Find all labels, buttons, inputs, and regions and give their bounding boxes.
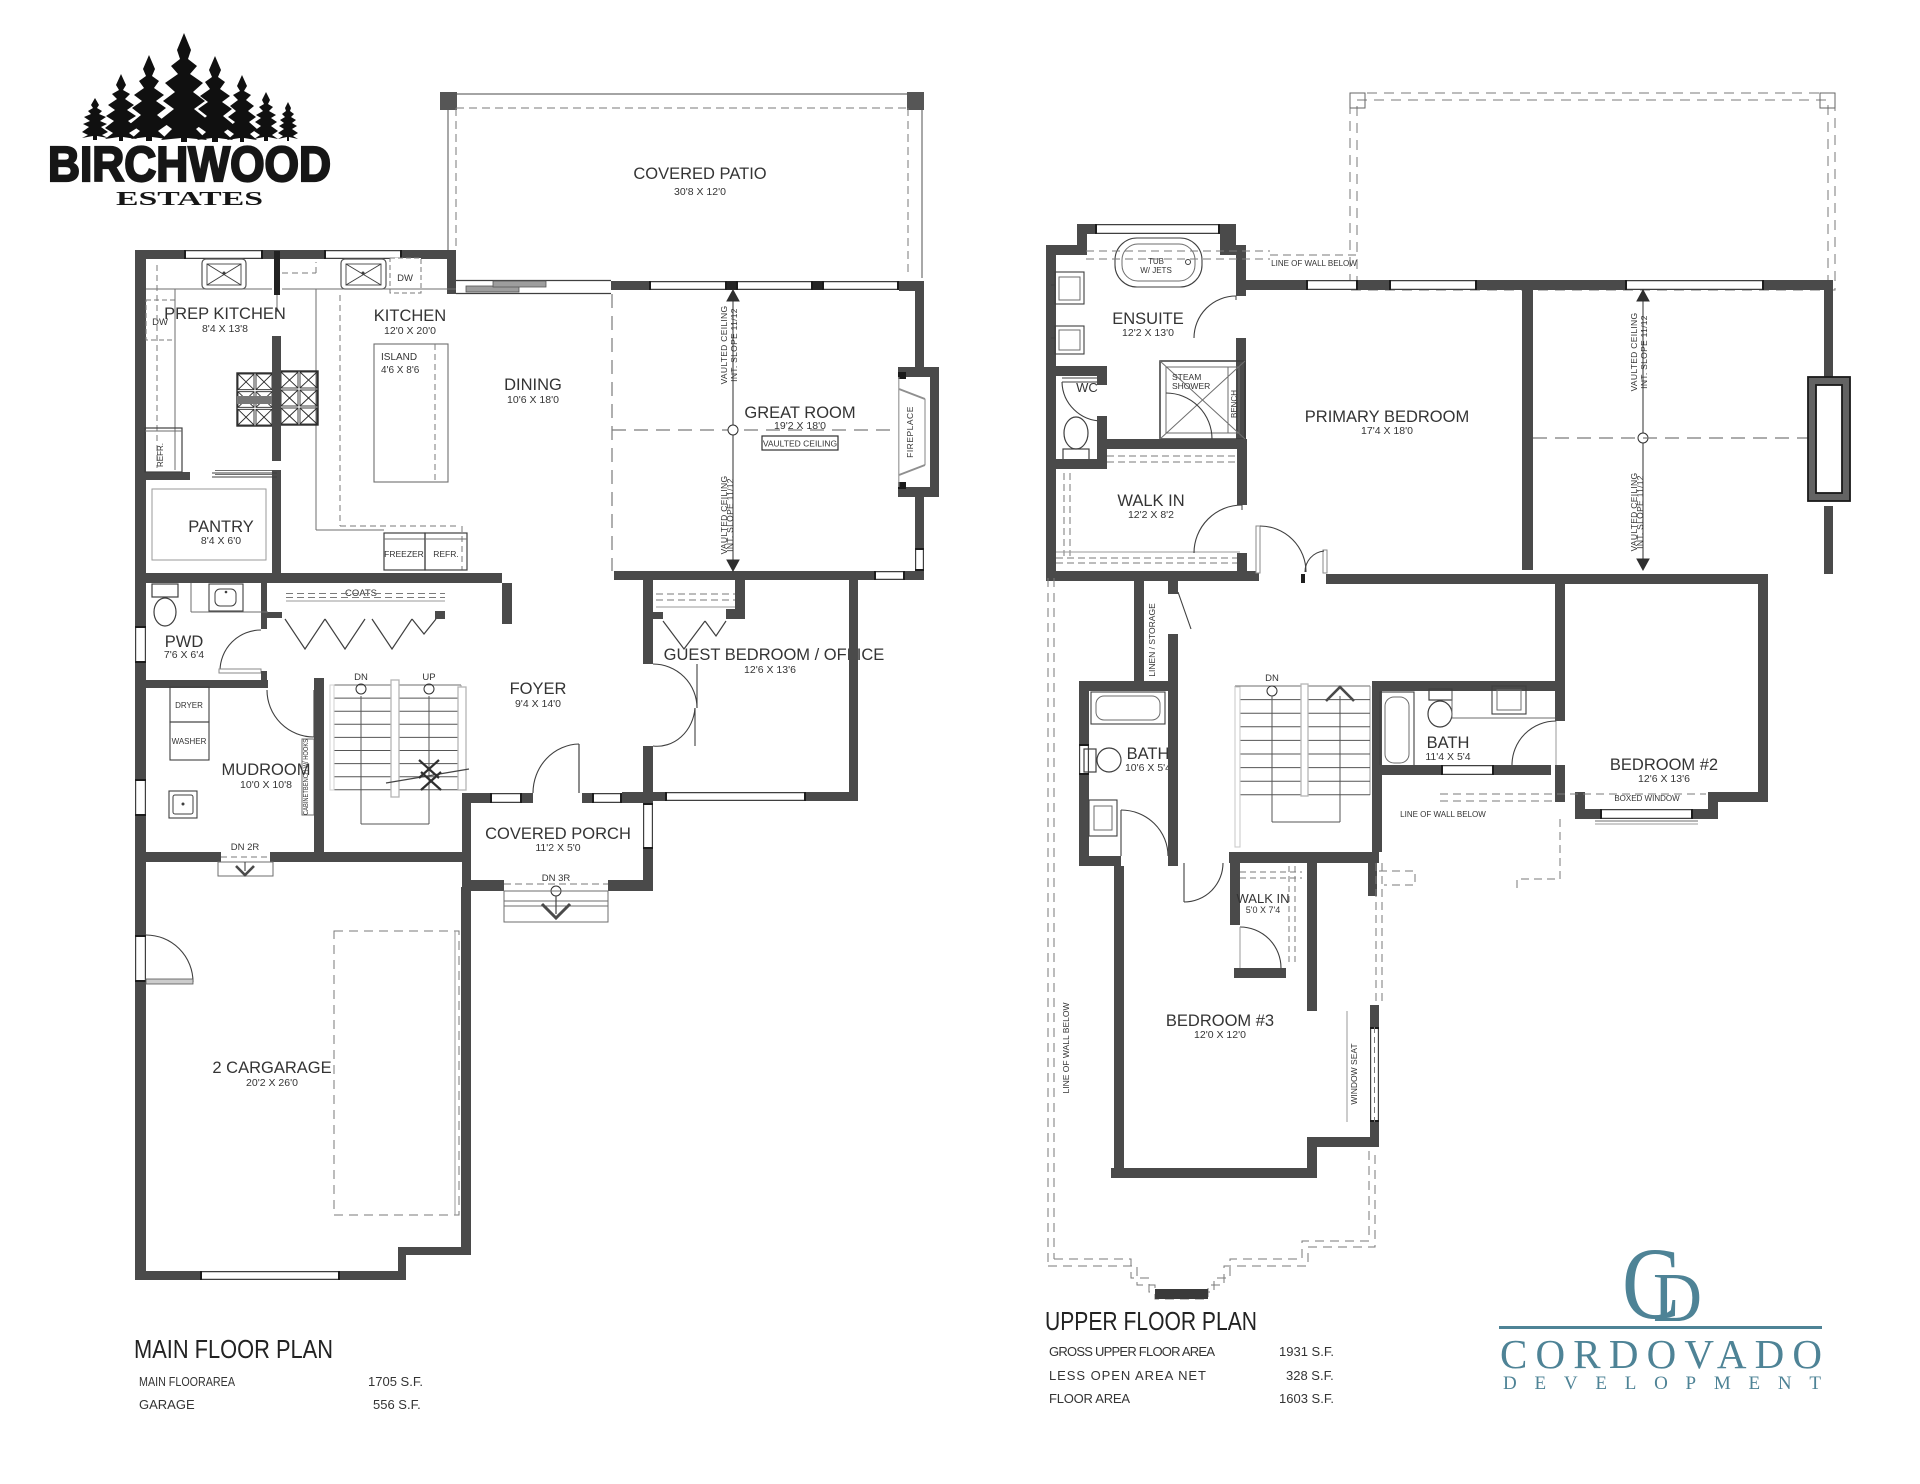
svg-text:REFR.: REFR.: [433, 549, 459, 559]
svg-text:12'6 X 13'6: 12'6 X 13'6: [1638, 773, 1690, 785]
svg-text:WINDOW SEAT: WINDOW SEAT: [1349, 1043, 1359, 1104]
svg-text:BOXED WINDOW: BOXED WINDOW: [1614, 794, 1680, 803]
svg-text:556 S.F.: 556 S.F.: [373, 1397, 421, 1412]
svg-text:UPPER FLOOR PLAN: UPPER FLOOR PLAN: [1045, 1308, 1257, 1336]
svg-text:D: D: [1653, 1260, 1702, 1337]
svg-text:KITCHEN: KITCHEN: [374, 307, 446, 325]
svg-text:2 CARGARAGE: 2 CARGARAGE: [212, 1059, 331, 1077]
svg-text:MUDROOM: MUDROOM: [222, 761, 311, 779]
svg-text:W/ JETS: W/ JETS: [1140, 266, 1172, 275]
svg-text:WALK IN: WALK IN: [1117, 492, 1184, 510]
svg-text:LINE OF WALL BELOW: LINE OF WALL BELOW: [1400, 810, 1486, 819]
svg-text:COATS: COATS: [345, 588, 377, 599]
svg-text:FLOOR AREA: FLOOR AREA: [1049, 1391, 1130, 1406]
svg-text:12'2 X 13'0: 12'2 X 13'0: [1122, 327, 1174, 339]
svg-text:VAULTED CEILING: VAULTED CEILING: [1629, 313, 1639, 392]
svg-text:UP: UP: [422, 672, 435, 683]
svg-text:8'4 X 6'0: 8'4 X 6'0: [201, 535, 241, 547]
svg-text:BIRCHWOOD: BIRCHWOOD: [48, 138, 331, 192]
svg-text:GROSS UPPER FLOOR AREA: GROSS UPPER FLOOR AREA: [1049, 1344, 1215, 1359]
svg-text:7'6 X 6'4: 7'6 X 6'4: [164, 649, 204, 661]
svg-text:BATH: BATH: [1127, 745, 1170, 763]
svg-text:VAULTED CEILING: VAULTED CEILING: [719, 306, 729, 385]
svg-text:LINE OF WALL BELOW: LINE OF WALL BELOW: [1271, 259, 1357, 268]
svg-text:11'4 X 5'4: 11'4 X 5'4: [1425, 751, 1470, 763]
svg-text:COVERED PATIO: COVERED PATIO: [633, 165, 766, 183]
svg-text:20'2 X 26'0: 20'2 X 26'0: [246, 1077, 298, 1089]
svg-text:DN: DN: [1265, 673, 1279, 684]
svg-text:WASHER: WASHER: [172, 737, 207, 746]
svg-text:TUB: TUB: [1148, 257, 1164, 266]
svg-text:MAIN FLOORAREA: MAIN FLOORAREA: [139, 1374, 235, 1389]
svg-text:1931 S.F.: 1931 S.F.: [1279, 1344, 1334, 1359]
svg-text:328 S.F.: 328 S.F.: [1286, 1368, 1334, 1383]
svg-text:DRYER: DRYER: [175, 701, 203, 710]
svg-text:BEDROOM #3: BEDROOM #3: [1166, 1012, 1274, 1030]
svg-text:LINEN / STORAGE: LINEN / STORAGE: [1147, 603, 1157, 677]
svg-text:5'0 X 7'4: 5'0 X 7'4: [1246, 905, 1280, 915]
svg-text:PANTRY: PANTRY: [188, 518, 253, 536]
svg-text:COVERED PORCH: COVERED PORCH: [485, 825, 631, 843]
svg-text:12'0 X 12'0: 12'0 X 12'0: [1194, 1029, 1246, 1041]
svg-text:BENCH: BENCH: [1230, 390, 1239, 418]
svg-text:SHOWER: SHOWER: [1172, 381, 1210, 391]
svg-text:17'4 X 18'0: 17'4 X 18'0: [1361, 425, 1413, 437]
svg-text:PRIMARY BEDROOM: PRIMARY BEDROOM: [1305, 408, 1469, 426]
svg-text:FREEZER: FREEZER: [384, 549, 424, 559]
svg-text:VAULTED CEILING: VAULTED CEILING: [763, 439, 837, 449]
svg-text:BEDROOM #2: BEDROOM #2: [1610, 756, 1718, 774]
svg-text:LINE OF WALL BELOW: LINE OF WALL BELOW: [1061, 1002, 1071, 1093]
svg-text:19'2 X 18'0: 19'2 X 18'0: [774, 420, 826, 432]
svg-text:FIREPLACE: FIREPLACE: [905, 406, 915, 458]
svg-text:WALK IN: WALK IN: [1237, 891, 1290, 906]
svg-text:10'0 X 10'8: 10'0 X 10'8: [240, 779, 292, 791]
svg-text:DN 2R: DN 2R: [231, 842, 260, 853]
svg-text:FOYER: FOYER: [510, 680, 567, 698]
svg-text:12'2 X 8'2: 12'2 X 8'2: [1128, 509, 1174, 521]
svg-text:30'8 X 12'0: 30'8 X 12'0: [674, 186, 726, 198]
svg-text:CORDOVADO: CORDOVADO: [1500, 1331, 1822, 1377]
svg-text:GARAGE: GARAGE: [139, 1397, 195, 1412]
svg-text:11'2 X 5'0: 11'2 X 5'0: [535, 842, 580, 854]
svg-text:DW: DW: [397, 273, 413, 284]
svg-text:10'6 X 18'0: 10'6 X 18'0: [507, 394, 559, 406]
svg-text:DN: DN: [354, 672, 368, 683]
svg-text:REFR.: REFR.: [156, 443, 165, 467]
svg-text:1705 S.F.: 1705 S.F.: [368, 1374, 423, 1389]
svg-text:DN 3R: DN 3R: [542, 873, 571, 884]
svg-text:INT. SLOPE 11/12: INT. SLOPE 11/12: [1635, 475, 1645, 549]
svg-text:INT. SLOPE 11/12: INT. SLOPE 11/12: [729, 308, 739, 382]
svg-text:9'4 X 14'0: 9'4 X 14'0: [515, 698, 561, 710]
svg-text:4'6 X 8'6: 4'6 X 8'6: [381, 365, 420, 376]
svg-text:ISLAND: ISLAND: [381, 352, 417, 363]
svg-text:1603 S.F.: 1603 S.F.: [1279, 1391, 1334, 1406]
svg-text:12'6 X 13'6: 12'6 X 13'6: [744, 664, 796, 676]
svg-text:MAIN FLOOR PLAN: MAIN FLOOR PLAN: [134, 1336, 333, 1364]
svg-text:BATH: BATH: [1427, 734, 1470, 752]
svg-text:12'0 X 20'0: 12'0 X 20'0: [384, 325, 436, 337]
svg-text:DINING: DINING: [504, 376, 562, 394]
svg-text:ENSUITE: ENSUITE: [1112, 310, 1184, 328]
svg-text:8'4 X 13'8: 8'4 X 13'8: [202, 323, 248, 335]
svg-text:PREP KITCHEN: PREP KITCHEN: [164, 305, 286, 323]
svg-text:10'6 X 5'4: 10'6 X 5'4: [1125, 762, 1171, 774]
svg-text:LESS OPEN AREA NET: LESS OPEN AREA NET: [1049, 1368, 1206, 1383]
svg-text:INT. SLOPE 11/12: INT. SLOPE 11/12: [1639, 315, 1649, 389]
svg-text:ESTATES: ESTATES: [116, 188, 263, 210]
